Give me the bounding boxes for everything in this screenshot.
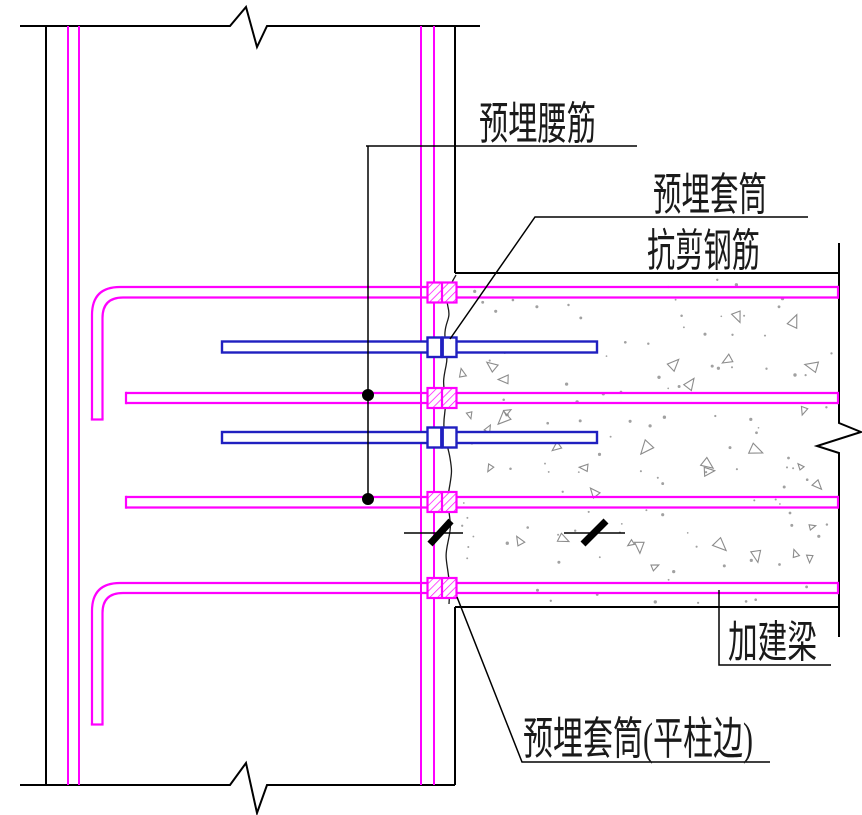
stipple-dot [661, 482, 664, 485]
stipple-dot [648, 424, 651, 427]
stipple-dot [745, 600, 748, 603]
stipple-dot [786, 466, 788, 468]
structure-outline [20, 7, 861, 813]
stipple-dot [753, 499, 755, 501]
stipple-dot [714, 415, 716, 417]
stipple-triangle [730, 309, 744, 323]
stipple-dot [765, 368, 767, 370]
stipple-dot [775, 498, 777, 500]
label-embedded-sleeve: 预埋套筒 [653, 170, 767, 220]
stipple-dot [711, 365, 714, 368]
bar-cut-symbols [404, 521, 625, 544]
stipple-dot [654, 600, 657, 603]
stipple-dot [787, 457, 790, 460]
stipple-triangle [798, 464, 804, 470]
stipple-dot [565, 382, 568, 385]
stipple-dot [645, 509, 647, 511]
stipple-dot [717, 367, 720, 370]
stipple-triangle [649, 563, 658, 572]
column-vertical-rebar [68, 26, 434, 785]
stipple-dot [783, 486, 786, 489]
stipple-dot [562, 491, 564, 493]
stipple-dot [716, 279, 718, 281]
stipple-dot [779, 503, 781, 505]
stipple-dot [606, 355, 608, 357]
sleeve-waist-bar2 [428, 492, 457, 512]
stipple-dot [668, 579, 670, 581]
sleeve-bottom-bar [428, 578, 457, 598]
stipple-dot [806, 478, 809, 481]
stipple-dot [463, 502, 465, 504]
stipple-dot [502, 399, 505, 402]
shear-sleeve2-right-cell [443, 428, 457, 448]
stipple-dot [826, 523, 828, 525]
stipple-dot [526, 526, 529, 529]
stipple-triangle [746, 441, 763, 458]
stipple-dot [509, 468, 512, 471]
stipple-dot [705, 471, 707, 473]
stipple-dot [792, 467, 794, 469]
stipple-dot [736, 468, 738, 470]
stipple-triangle [631, 538, 647, 554]
stipple-triangle [807, 523, 815, 531]
waist-bar-leader-dot-2 [362, 493, 374, 505]
stipple-triangle [639, 439, 654, 454]
stipple-dot [512, 299, 515, 302]
stipple-triangle [722, 353, 734, 365]
stipple-dot [754, 598, 757, 601]
stipple-dot [640, 470, 642, 472]
stipple-dot [599, 556, 601, 558]
shear-sleeve1-right-cell [443, 338, 457, 358]
stipple-dot [789, 512, 792, 515]
waist-bar-leader-dot-1 [362, 389, 374, 401]
stipple-dot [489, 360, 491, 362]
stipple-dot [683, 326, 685, 328]
label-shear-rebar: 抗剪钢筋 [647, 226, 760, 276]
stipple-triangle [805, 357, 822, 374]
leader-lines [362, 146, 831, 762]
stipple-dot [579, 316, 582, 319]
stipple-dot [624, 341, 627, 344]
stipple-dot [720, 315, 722, 317]
stipple-dot [749, 418, 752, 421]
stipple-dot [731, 334, 733, 336]
bottom-bar-outer-line [92, 583, 838, 724]
stipple-triangle [628, 539, 635, 546]
top-bar-inner-line [103, 298, 839, 420]
stipple-dot [672, 570, 675, 573]
stipple-dot [687, 532, 689, 534]
stipple-triangle [515, 536, 526, 547]
stipple-dot [557, 561, 560, 564]
stipple-dot [567, 304, 569, 306]
stipple-dot [696, 546, 698, 548]
stipple-dot [578, 471, 580, 473]
stipple-dot [536, 589, 539, 592]
stipple-dot [466, 557, 468, 559]
stipple-triangle [503, 408, 511, 416]
drawing-canvas: 预埋腰筋 预埋套筒 抗剪钢筋 加建梁 预埋套筒(平柱边) [0, 0, 862, 815]
stipple-dot [793, 373, 796, 376]
label-waist-bar: 预埋腰筋 [479, 99, 596, 149]
stipple-dot [750, 559, 753, 562]
stipple-dot [743, 315, 745, 317]
stipple-dot [678, 385, 681, 388]
beam-right-break-line [817, 243, 861, 637]
stipple-dot [675, 299, 677, 301]
stipple-dot [647, 342, 649, 344]
label-flush-sleeve: 预埋套筒(平柱边) [523, 714, 753, 764]
stipple-dot [778, 563, 781, 566]
stipple-dot [588, 511, 590, 513]
stipple-triangle [579, 461, 591, 473]
stipple-dot [764, 335, 766, 337]
stipple-dot [778, 305, 781, 308]
stipple-dot [657, 376, 660, 379]
stipple-triangle [667, 359, 679, 371]
stipple-dot [473, 290, 476, 293]
stipple-triangle [457, 369, 468, 380]
stipple-dot [535, 305, 538, 308]
stipple-dot [723, 564, 726, 567]
stipple-dot [667, 388, 669, 390]
stipple-dot [579, 419, 582, 422]
stipple-triangle [791, 549, 801, 559]
stipple-dot [557, 534, 559, 536]
stipple-dot [507, 414, 509, 416]
stipple-dot [663, 416, 666, 419]
stipple-dot [629, 420, 632, 423]
stipple-dot [817, 535, 820, 538]
stipple-dot [574, 530, 576, 532]
stipple-dot [703, 333, 706, 336]
stipple-triangle [498, 372, 512, 386]
stipple-dot [825, 406, 827, 408]
stipple-dot [657, 477, 659, 479]
detail-drawing-svg: 预埋腰筋 预埋套筒 抗剪钢筋 加建梁 预埋套筒(平柱边) [0, 0, 862, 815]
stipple-dot [461, 525, 463, 527]
stipple-triangle [812, 480, 822, 490]
stipple-dot [472, 536, 474, 538]
stipple-dot [548, 471, 550, 473]
stipple-dot [805, 374, 807, 376]
stipple-dot [755, 431, 758, 434]
stipple-triangle [785, 315, 801, 331]
column-bottom-line-with-break [20, 763, 455, 813]
stipple-dot [544, 463, 546, 465]
stipple-dot [731, 366, 733, 368]
stipple-dot [621, 523, 623, 525]
stipple-triangle [683, 378, 696, 391]
stipple-dot [758, 427, 760, 429]
stipple-dot [550, 600, 552, 602]
stipple-dot [680, 314, 683, 317]
sleeve-top-bar [428, 283, 457, 303]
column-top-line-with-break [20, 7, 480, 47]
stipple-triangle [555, 532, 569, 546]
stipple-triangle [486, 463, 495, 472]
stipple-dot [466, 517, 468, 519]
stipple-triangle [804, 552, 815, 563]
stipple-dot [467, 546, 469, 548]
stipple-triangle [712, 537, 726, 551]
stipple-triangle [798, 404, 809, 415]
shear-sleeve2-left-cell [428, 428, 442, 448]
shear-bar-2 [222, 432, 597, 443]
stipple-dot [598, 453, 601, 456]
shear-bar-1 [222, 342, 597, 353]
stipple-dot [481, 301, 484, 304]
stipple-dot [546, 422, 549, 425]
stipple-triangle [487, 360, 499, 372]
stipple-dot [830, 352, 832, 354]
shear-sleeve1-left-cell [428, 338, 442, 358]
stipple-triangle [465, 410, 474, 419]
sleeve-waist-bar1 [428, 388, 457, 408]
stipple-dot [729, 446, 732, 449]
stipple-dot [506, 542, 509, 545]
stipple-dot [610, 436, 612, 438]
stipple-dot [790, 524, 793, 527]
stipple-dot [494, 310, 497, 313]
label-added-beam: 加建梁 [728, 618, 817, 667]
stipple-dot [805, 586, 808, 589]
stipple-dot [661, 513, 664, 516]
stipple-dot [697, 602, 699, 604]
